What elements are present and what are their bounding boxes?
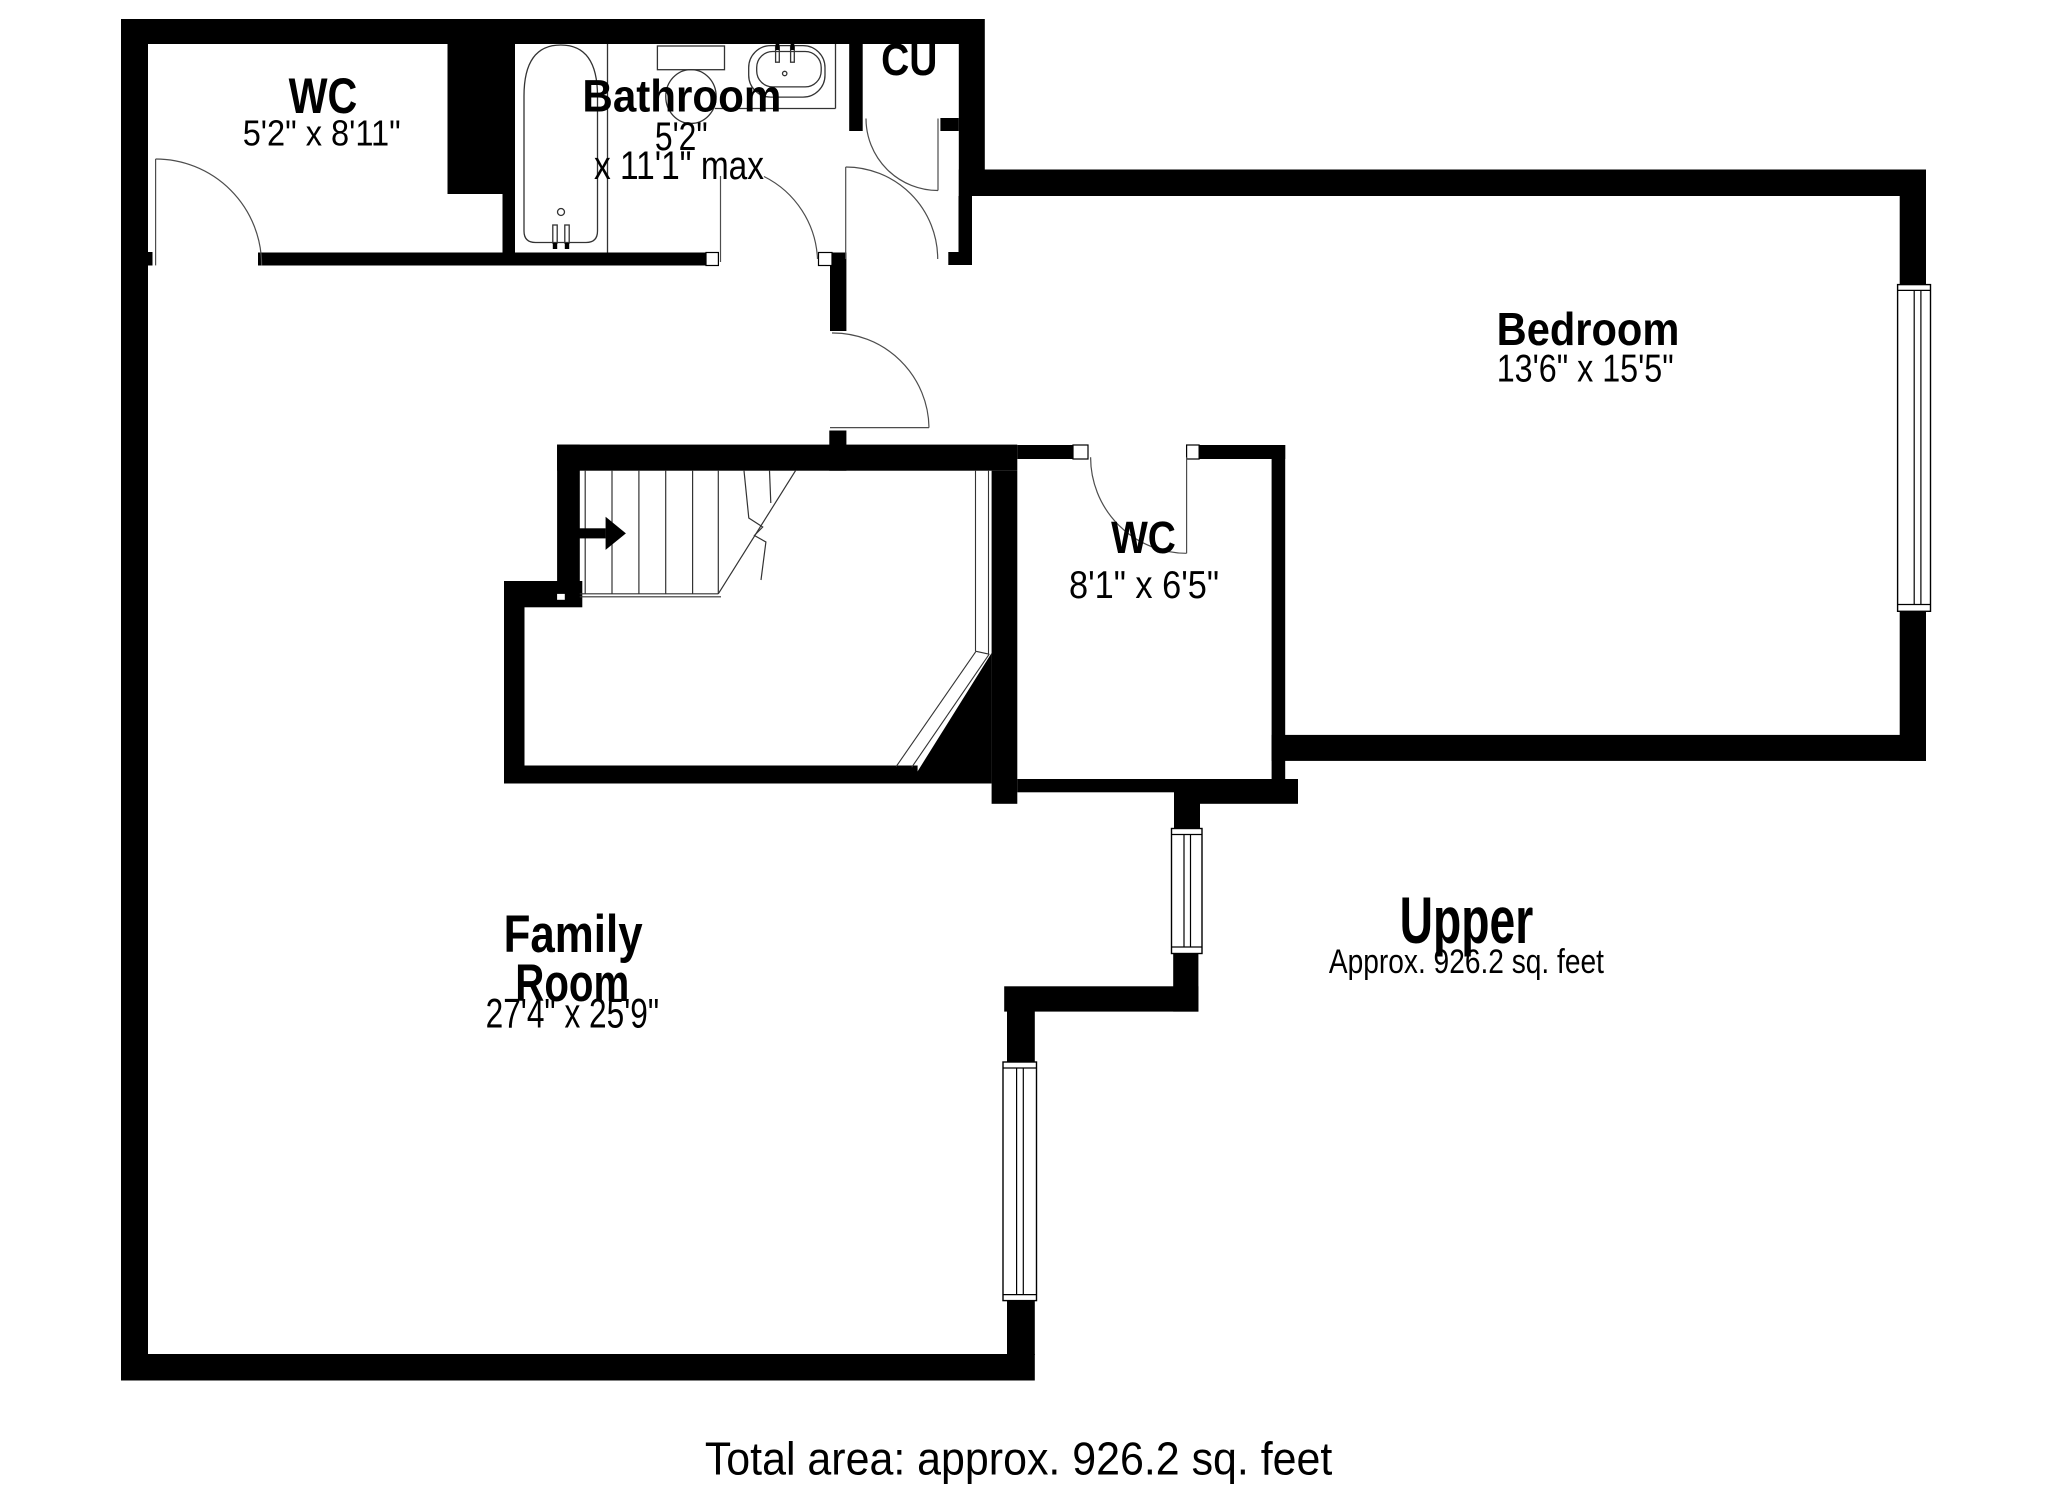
svg-text:CU: CU [881, 34, 937, 85]
svg-text:5'2" x 8'11": 5'2" x 8'11" [243, 113, 401, 154]
svg-text:WC: WC [1111, 512, 1176, 563]
svg-text:27'4" x 25'9": 27'4" x 25'9" [486, 990, 659, 1037]
svg-text:Bathroom: Bathroom [582, 71, 781, 122]
svg-text:Total area: approx. 926.2 sq.: Total area: approx. 926.2 sq. feet [705, 1433, 1333, 1485]
svg-text:x 11'1" max: x 11'1" max [594, 144, 764, 188]
svg-text:8'1" x 6'5": 8'1" x 6'5" [1069, 564, 1219, 607]
svg-text:Approx. 926.2 sq. feet: Approx. 926.2 sq. feet [1329, 943, 1604, 981]
svg-text:13'6" x 15'5": 13'6" x 15'5" [1497, 347, 1674, 390]
